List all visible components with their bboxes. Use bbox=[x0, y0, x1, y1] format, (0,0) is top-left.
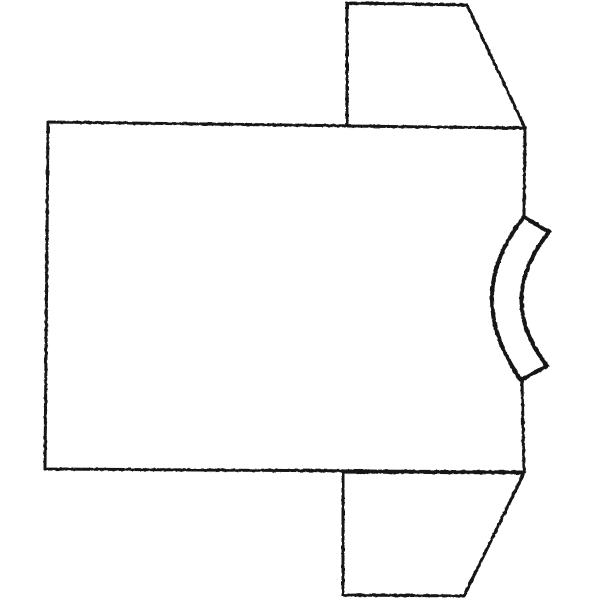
tshirt-drawing-canvas bbox=[0, 0, 600, 600]
tshirt-line-drawing bbox=[0, 0, 600, 600]
